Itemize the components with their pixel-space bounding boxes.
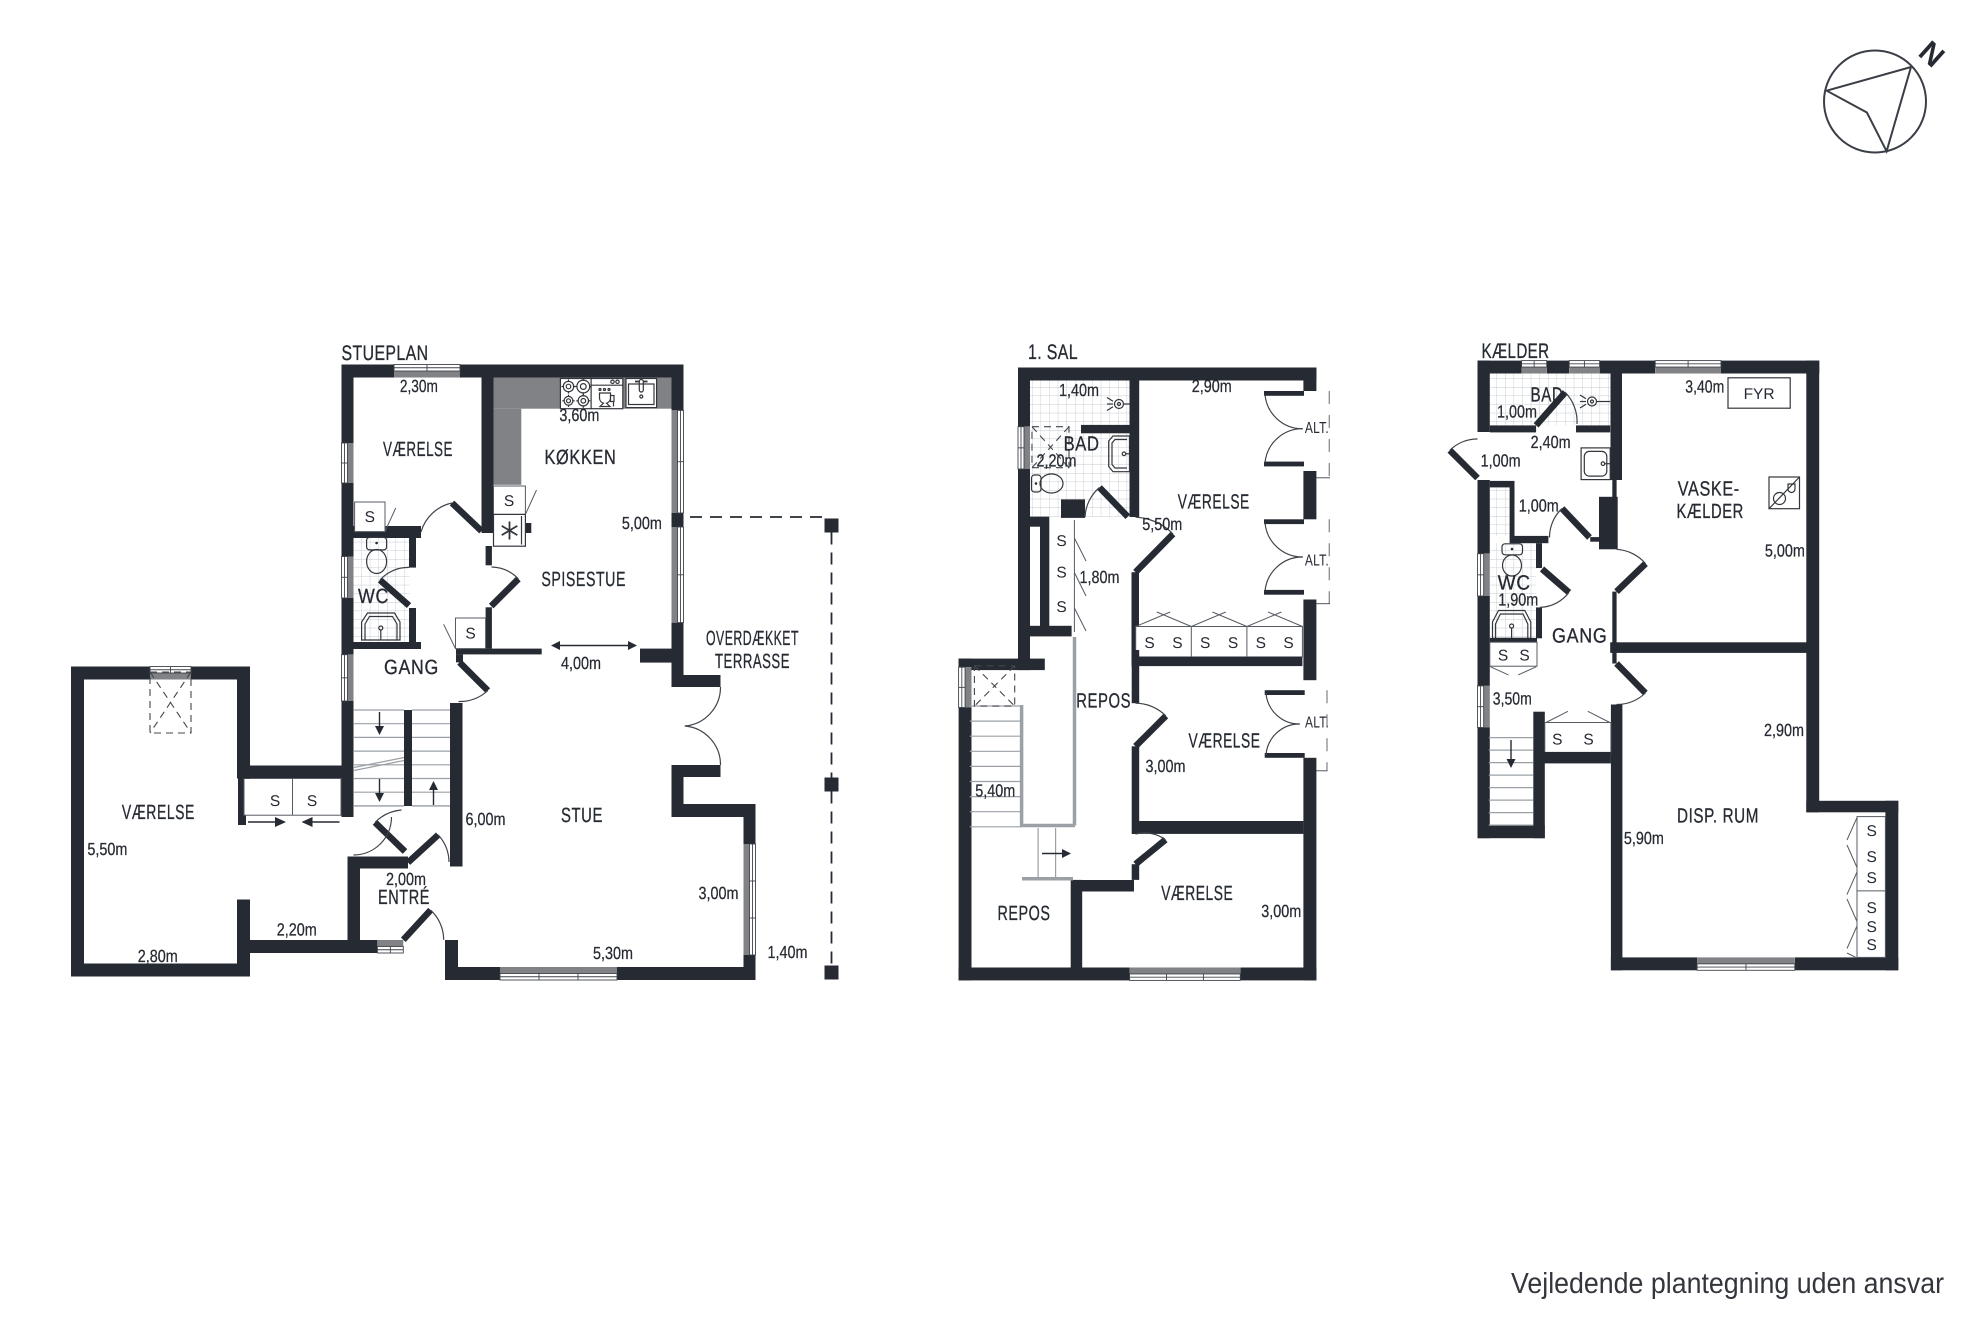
svg-text:2,80m: 2,80m [138,946,178,966]
svg-text:2,00m: 2,00m [386,869,426,889]
svg-text:S: S [1867,919,1877,936]
svg-text:ENTRÉ: ENTRÉ [378,886,430,909]
svg-text:GANG: GANG [1552,624,1608,647]
svg-text:5,00m: 5,00m [1765,540,1805,560]
svg-text:S: S [1228,635,1238,652]
svg-text:S: S [1867,870,1877,887]
svg-text:S: S [504,493,514,510]
svg-text:S: S [365,509,375,526]
svg-text:S: S [270,793,280,810]
svg-text:3,60m: 3,60m [559,405,599,425]
svg-text:GANG: GANG [384,656,439,679]
svg-text:2,40m: 2,40m [1531,432,1571,452]
svg-text:6,00m: 6,00m [466,809,506,829]
svg-text:S: S [1867,937,1877,954]
svg-text:KØKKEN: KØKKEN [545,446,617,469]
svg-text:2,20m: 2,20m [1037,450,1077,470]
svg-text:S: S [1056,599,1066,616]
svg-text:KÆLDER: KÆLDER [1677,500,1744,523]
svg-text:3,00m: 3,00m [1146,756,1186,776]
svg-text:3,40m: 3,40m [1685,376,1724,396]
svg-text:S: S [1867,823,1877,840]
svg-text:S: S [1144,635,1154,652]
svg-text:KÆLDER: KÆLDER [1482,340,1550,363]
svg-text:S: S [1867,849,1877,866]
svg-text:FYR: FYR [1744,386,1775,403]
svg-text:WC: WC [358,585,389,608]
svg-text:SPISESTUE: SPISESTUE [541,568,626,591]
svg-text:OVERDÆKKET: OVERDÆKKET [706,627,799,650]
svg-text:VÆRELSE: VÆRELSE [383,438,453,461]
svg-text:TERRASSE: TERRASSE [715,650,790,673]
svg-text:S: S [1056,533,1066,550]
svg-text:1,80m: 1,80m [1080,567,1120,587]
svg-text:S: S [465,626,475,643]
svg-text:ALT.: ALT. [1305,715,1329,732]
svg-text:1,90m: 1,90m [1498,589,1538,609]
svg-text:VÆRELSE: VÆRELSE [1178,491,1250,514]
svg-text:1,00m: 1,00m [1519,495,1559,515]
svg-text:ALT.: ALT. [1305,553,1329,570]
svg-text:S: S [1498,648,1508,665]
svg-text:S: S [1056,565,1066,582]
svg-text:S: S [1283,635,1293,652]
svg-text:S: S [1583,732,1593,749]
svg-text:S: S [1200,635,1210,652]
svg-text:ALT.: ALT. [1305,420,1329,437]
svg-text:VÆRELSE: VÆRELSE [122,801,195,824]
svg-text:2,20m: 2,20m [277,919,317,939]
svg-text:VÆRELSE: VÆRELSE [1189,730,1261,753]
svg-text:3,50m: 3,50m [1493,689,1532,709]
svg-text:DISP. RUM: DISP. RUM [1677,804,1759,827]
svg-text:S: S [1256,635,1266,652]
svg-text:5,50m: 5,50m [87,839,127,859]
svg-text:1,40m: 1,40m [768,942,808,962]
svg-text:STUEPLAN: STUEPLAN [342,342,429,365]
svg-text:2,90m: 2,90m [1764,720,1804,740]
svg-text:3,00m: 3,00m [1261,901,1301,921]
svg-text:5,30m: 5,30m [593,943,633,963]
svg-text:S: S [307,793,317,810]
svg-text:3,00m: 3,00m [699,883,739,903]
svg-text:STUE: STUE [561,804,603,827]
svg-text:VASKE-: VASKE- [1678,478,1740,501]
svg-text:Vejledende plantegning uden an: Vejledende plantegning uden ansvar [1511,1268,1944,1300]
svg-text:S: S [1867,900,1877,917]
svg-text:VÆRELSE: VÆRELSE [1161,882,1233,905]
svg-text:S: S [1552,732,1562,749]
svg-text:1,40m: 1,40m [1059,380,1099,400]
svg-text:5,00m: 5,00m [622,513,662,533]
svg-text:2,90m: 2,90m [1192,376,1232,396]
svg-text:1,00m: 1,00m [1481,450,1521,470]
svg-text:1. SAL: 1. SAL [1028,341,1078,364]
svg-text:S: S [1519,648,1529,665]
svg-text:1,00m: 1,00m [1497,402,1537,422]
svg-text:5,50m: 5,50m [1142,514,1182,534]
svg-text:S: S [1172,635,1182,652]
svg-text:REPOS: REPOS [1076,690,1131,713]
svg-text:REPOS: REPOS [998,902,1051,925]
svg-text:5,90m: 5,90m [1624,828,1664,848]
svg-text:4,00m: 4,00m [561,653,601,673]
svg-text:5,40m: 5,40m [975,781,1015,801]
svg-text:2,30m: 2,30m [400,376,438,396]
